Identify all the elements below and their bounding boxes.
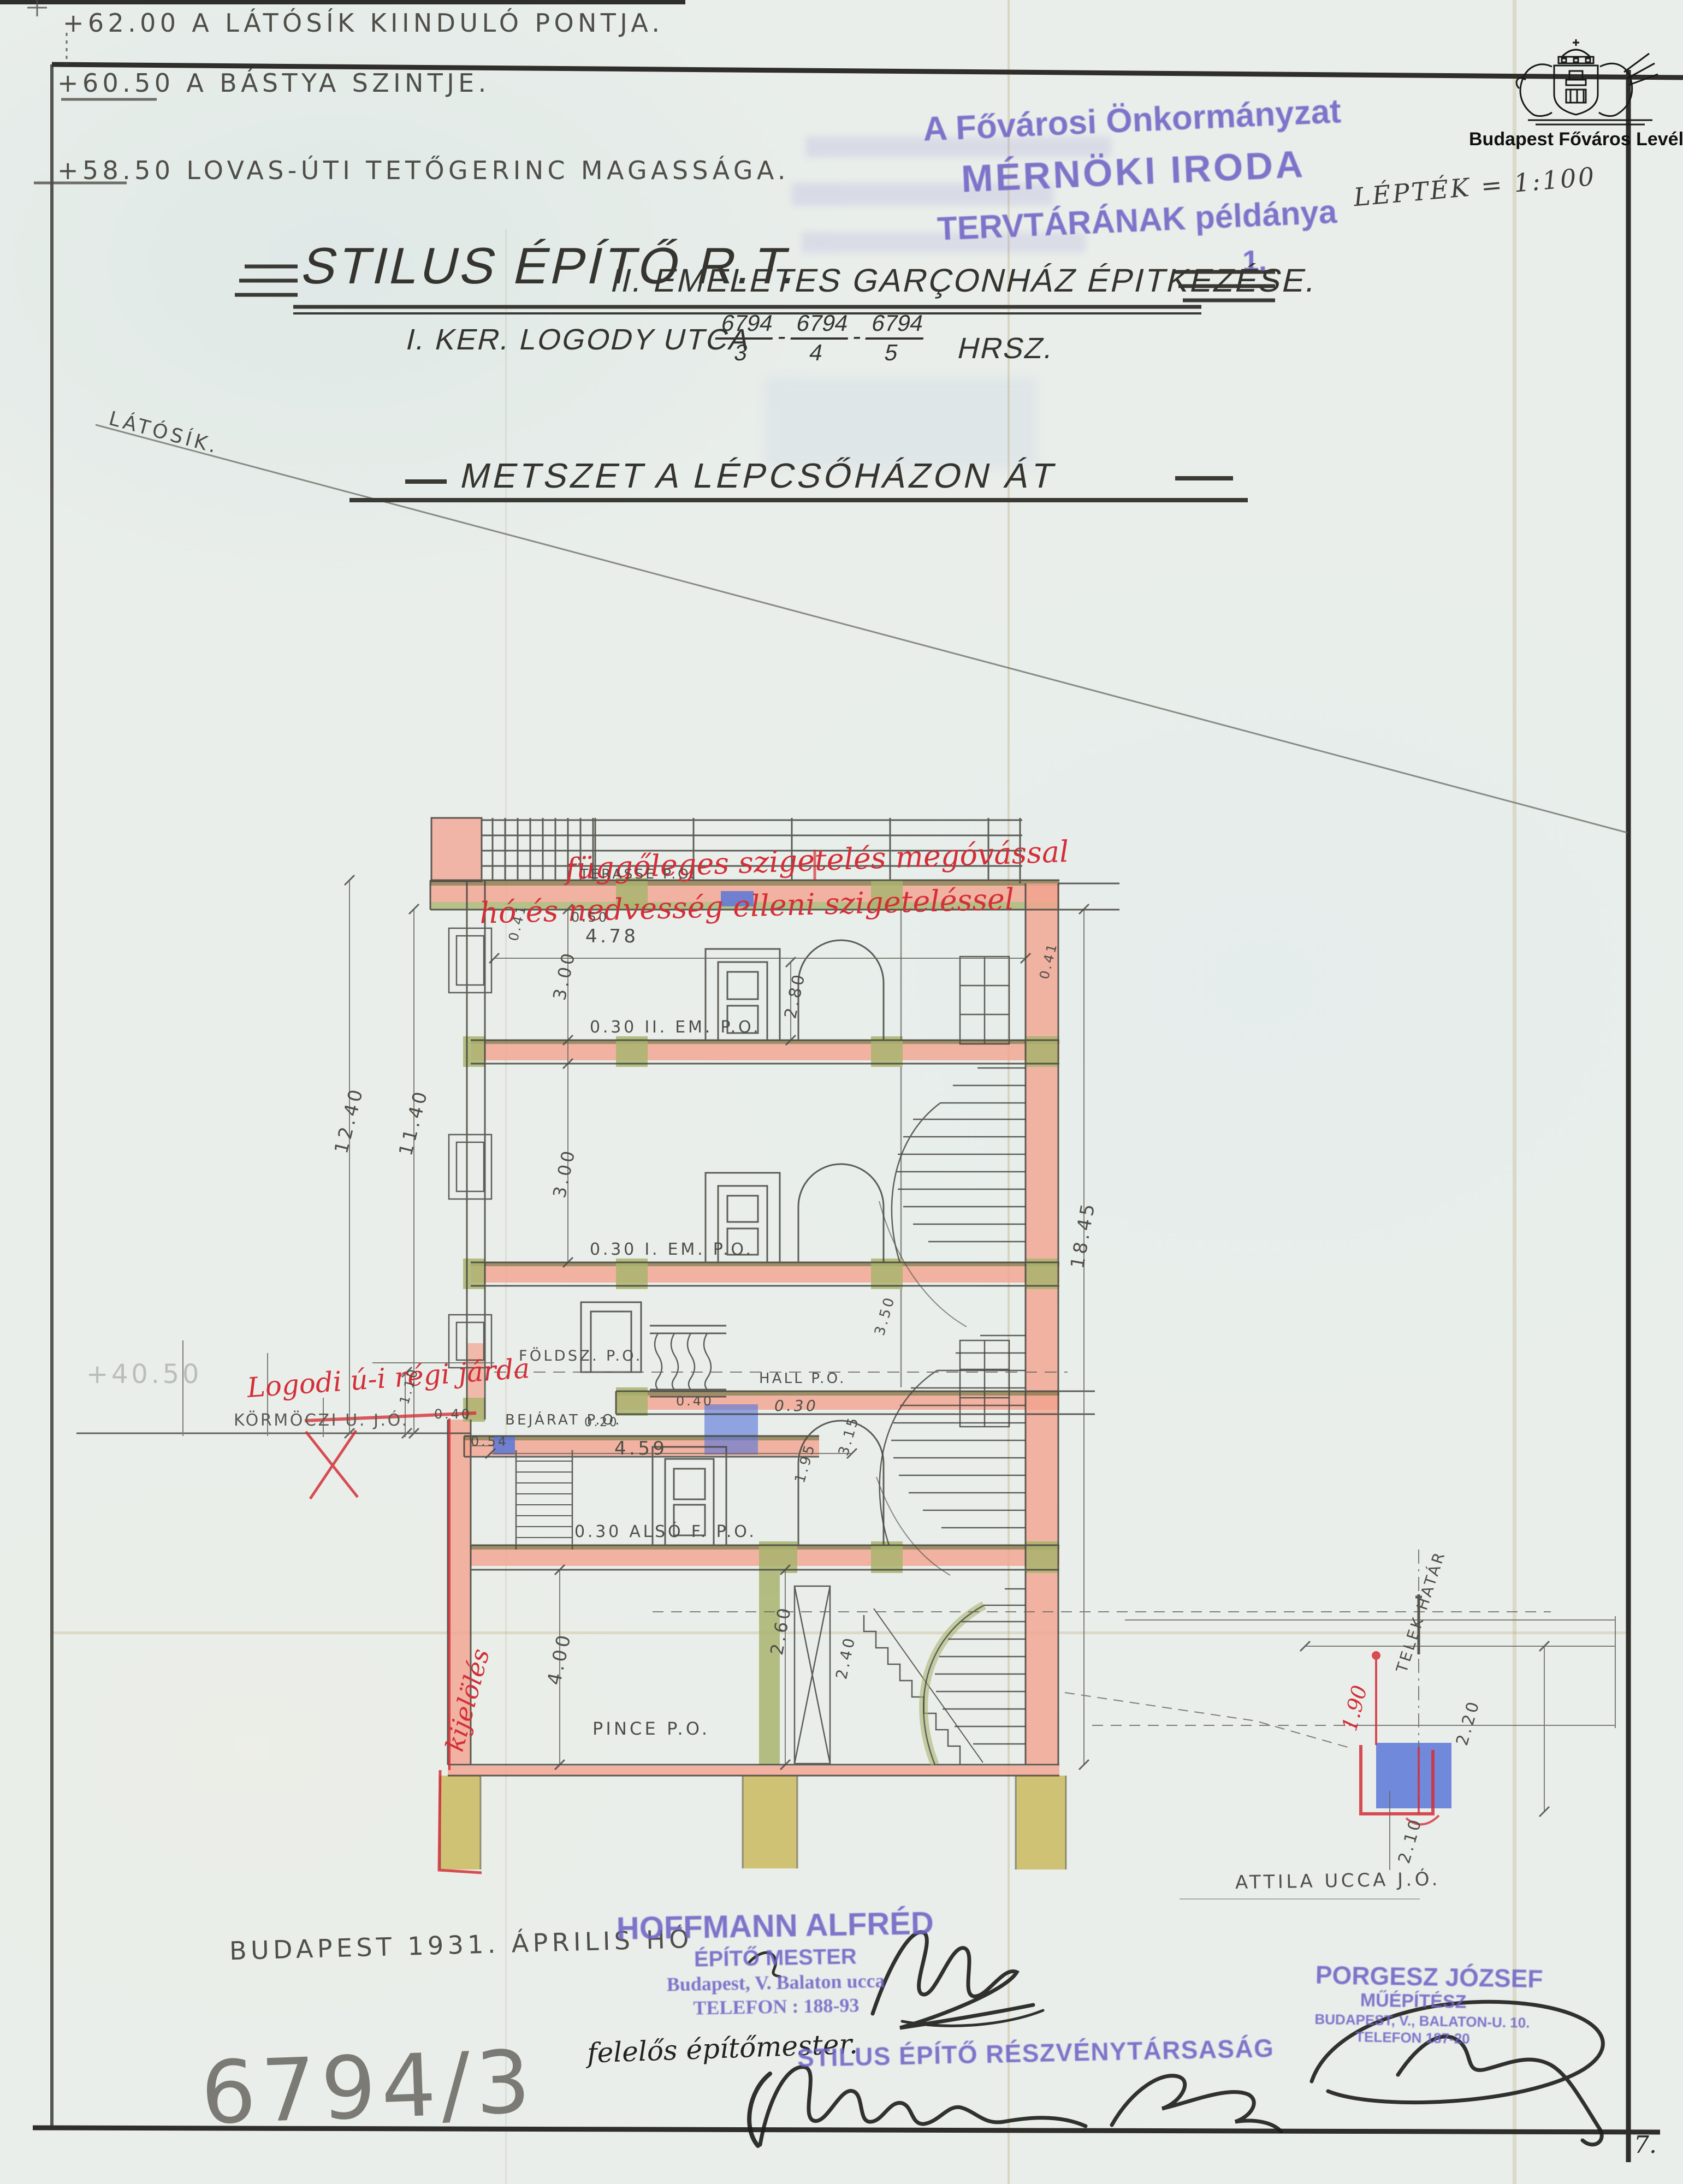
signature-porgesz (1398, 2037, 1602, 2145)
hoffmann-stamp-title: ÉPÍTŐ MESTER (617, 1944, 934, 1972)
coat-of-arms-icon (1469, 38, 1683, 134)
archive-logo: Budapest Főváros Levéltára (1469, 38, 1683, 153)
porgesz-stamp-address: BUDAPEST, V., BALATON-U. 10. (1314, 2012, 1511, 2031)
signature-stilus-right (1112, 2076, 1281, 2132)
dim-478: 4.78 (585, 927, 638, 947)
dim-054: 0.54 (471, 1435, 508, 1449)
section-subtitle: METSZET A LÉPCSŐHÁZON ÁT (457, 458, 1061, 494)
porgesz-stamp-name: PORGESZ JÓZSEF (1315, 1962, 1512, 1992)
label-foldsz: FÖLDSZ. P.O. (519, 1349, 643, 1364)
porgesz-stamp-title: MŰÉPÍTÉSZ (1315, 1990, 1512, 2013)
dim-050: 0.50 (571, 911, 609, 924)
title-address-suffix: HRSZ. (955, 333, 1058, 364)
scanned-plan-sheet: +62.00 A LÁTÓSÍK KIINDULÓ PONTJA. +60.50… (0, 0, 1683, 2184)
lot-1-num: 6794 (715, 310, 779, 340)
lot-1-den: 3 (709, 340, 773, 366)
lot-number-big: 6794/3 (199, 2037, 537, 2139)
elevation-note-62: +62.00 A LÁTÓSÍK KIINDULÓ PONTJA. (63, 10, 663, 36)
title-address-prefix: I. KER. LOGODY UTCA (403, 324, 754, 355)
elevation-note-5850: +58.50 LOVAS-ÚTI TETŐGERINC MAGASSÁGA. (57, 157, 790, 183)
label-alsof: 0.30 ALSÓ F. P.O. (574, 1523, 757, 1541)
hoffmann-stamp-name: HOFFMANN ALFRÉD (616, 1907, 933, 1946)
signature-stilus-left-cap (749, 2074, 770, 2146)
hoffmann-stamp: HOFFMANN ALFRÉD ÉPÍTŐ MESTER Budapest, V… (616, 1907, 934, 2020)
hoffmann-stamp-address: Budapest, V. Balaton ucca (617, 1970, 934, 1996)
level-4050: +40.50 (86, 1361, 202, 1388)
attila-street-label: ATTILA UCCA J.Ó. (1235, 1870, 1441, 1893)
elevation-note-6050: +60.50 A BÁSTYA SZINTJE. (57, 70, 490, 96)
dim-040-left: 0.40 (434, 1408, 472, 1421)
porgesz-stamp: PORGESZ JÓZSEF MŰÉPÍTÉSZ BUDAPEST, V., B… (1314, 1962, 1513, 2048)
label-hall: HALL P.O. (759, 1372, 846, 1386)
label-terasse: TERASSE P.O. (580, 867, 697, 881)
dim-030: 0.30 (774, 1398, 818, 1414)
lot-2-den: 4 (785, 340, 848, 366)
label-em2: 0.30 II. EM. P.O. (590, 1019, 761, 1036)
lot-separator-1: - (775, 321, 790, 351)
title-lot-fractions: 6794 3 - 6794 4 - 6794 5 (709, 310, 929, 366)
lot-3-num: 6794 (866, 310, 929, 340)
label-em1: 0.30 I. EM. P.O. (590, 1241, 754, 1259)
lot-2-num: 6794 (790, 310, 854, 340)
lot-3-den: 5 (860, 340, 923, 366)
lot-separator-2: - (850, 321, 865, 351)
label-pince: PINCE P.O. (592, 1720, 710, 1738)
dim-040-right: 0.40 (676, 1394, 714, 1408)
page-number: 7. (1634, 2133, 1657, 2158)
dim-459: 4.59 (614, 1439, 667, 1459)
title-project: II. EMELETES GARÇONHÁZ ÉPITKEZÉSE. (608, 263, 1321, 298)
archive-logo-caption: Budapest Főváros Levéltára (1469, 130, 1683, 150)
signature-stilus-left (760, 2067, 1086, 2145)
street-name-pencil: KÖRMÖCZI U. J.Ó. (234, 1412, 409, 1429)
dim-020: 0.20 (584, 1416, 619, 1429)
